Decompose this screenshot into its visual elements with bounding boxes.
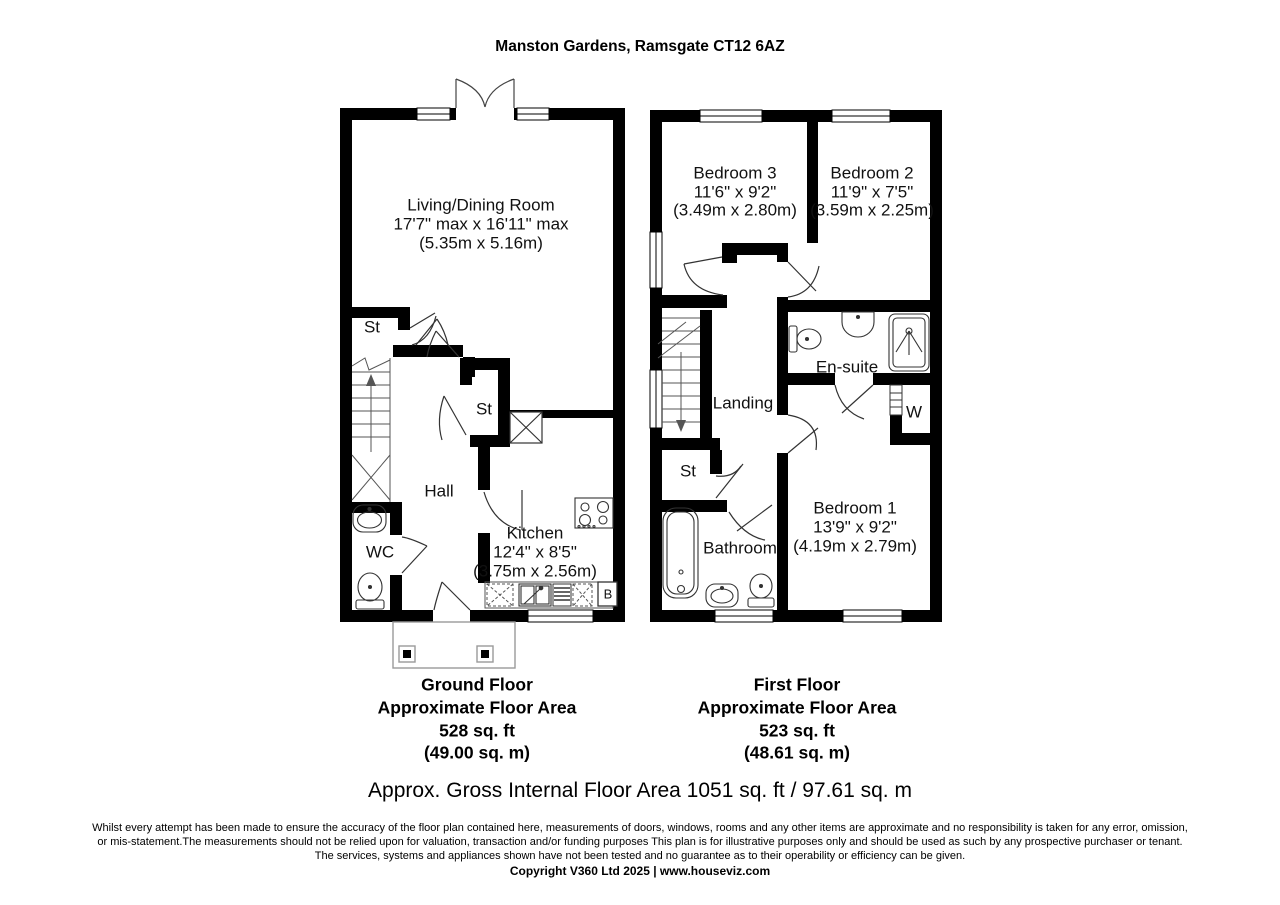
page-title: Manston Gardens, Ramsgate CT12 6AZ (495, 38, 784, 56)
ensuite-sink (842, 312, 874, 337)
floorplan-page: Manston Gardens, Ramsgate CT12 6AZ Livin… (0, 0, 1280, 905)
ground-floor-caption-title: Ground Floor (421, 675, 533, 696)
room-label-store: St (680, 463, 696, 480)
disclaimer-line-3: The services, systems and appliances sho… (315, 850, 965, 862)
first-floor-caption-sqm: (48.61 sq. m) (744, 743, 850, 764)
kitchen-appliance (553, 584, 571, 606)
room-label-bathroom: Bathroom (703, 540, 777, 557)
room-label-bedroom1: Bedroom 1 (813, 500, 896, 517)
room-label-store1: St (364, 319, 380, 336)
room-dims-bedroom3-metric: (3.49m x 2.80m) (673, 202, 797, 219)
room-dims-kitchen-metric: (3.75m x 2.56m) (473, 563, 597, 580)
front-door (456, 79, 514, 108)
room-dims-kitchen-imperial: 12'4" x 8'5" (493, 544, 577, 561)
first-floor-caption-area-label: Approximate Floor Area (698, 698, 897, 719)
floorplan-drawing (0, 0, 1280, 905)
wardrobe-door (890, 385, 902, 415)
room-dims-bedroom1-metric: (4.19m x 2.79m) (793, 538, 917, 555)
bathroom-sink (706, 584, 738, 607)
kitchen-void-box (510, 412, 542, 443)
ensuite-toilet (789, 326, 821, 352)
room-label-living: Living/Dining Room (407, 197, 554, 214)
room-label-wardrobe: W (906, 404, 922, 421)
disclaimer-line-2: or mis-statement.The measurements should… (97, 836, 1182, 848)
room-label-ensuite: En-suite (816, 359, 878, 376)
room-label-wc: WC (366, 544, 394, 561)
bathroom-toilet (748, 574, 774, 607)
room-label-hall: Hall (424, 483, 453, 500)
ground-floor-caption-sqm: (49.00 sq. m) (424, 743, 530, 764)
disclaimer-line-1: Whilst every attempt has been made to en… (92, 822, 1188, 834)
ensuite-shower (889, 314, 929, 371)
first-floor-caption-title: First Floor (754, 675, 841, 696)
room-dims-living-metric: (5.35m x 5.16m) (419, 235, 543, 252)
room-label-boiler: B (604, 588, 613, 601)
kitchen-hob (575, 498, 613, 528)
room-dims-bedroom1-imperial: 13'9" x 9'2" (813, 519, 897, 536)
bathroom-bath (663, 508, 698, 598)
room-dims-bedroom3-imperial: 11'6" x 9'2" (694, 184, 777, 201)
room-label-bedroom3: Bedroom 3 (693, 165, 776, 182)
room-dims-living-imperial: 17'7" max x 16'11" max (393, 216, 568, 233)
ground-floor-caption-sqft: 528 sq. ft (439, 721, 515, 742)
room-label-store2: St (476, 401, 492, 418)
room-label-kitchen: Kitchen (507, 525, 564, 542)
room-dims-bedroom2-metric: (3.59m x 2.25m) (810, 202, 934, 219)
first-floor-stairs (658, 318, 700, 432)
wc-toilet (356, 573, 384, 609)
room-label-landing: Landing (713, 395, 774, 412)
ground-floor-stairs (352, 358, 390, 502)
room-dims-bedroom2-imperial: 11'9" x 7'5" (831, 184, 914, 201)
room-label-bedroom2: Bedroom 2 (830, 165, 913, 182)
kitchen-sink (519, 584, 551, 606)
first-floor-caption-sqft: 523 sq. ft (759, 721, 835, 742)
copyright-line: Copyright V360 Ltd 2025 | www.houseviz.c… (510, 864, 770, 878)
gross-area-summary: Approx. Gross Internal Floor Area 1051 s… (368, 779, 912, 803)
ground-floor-caption-area-label: Approximate Floor Area (378, 698, 577, 719)
porch (393, 622, 515, 668)
